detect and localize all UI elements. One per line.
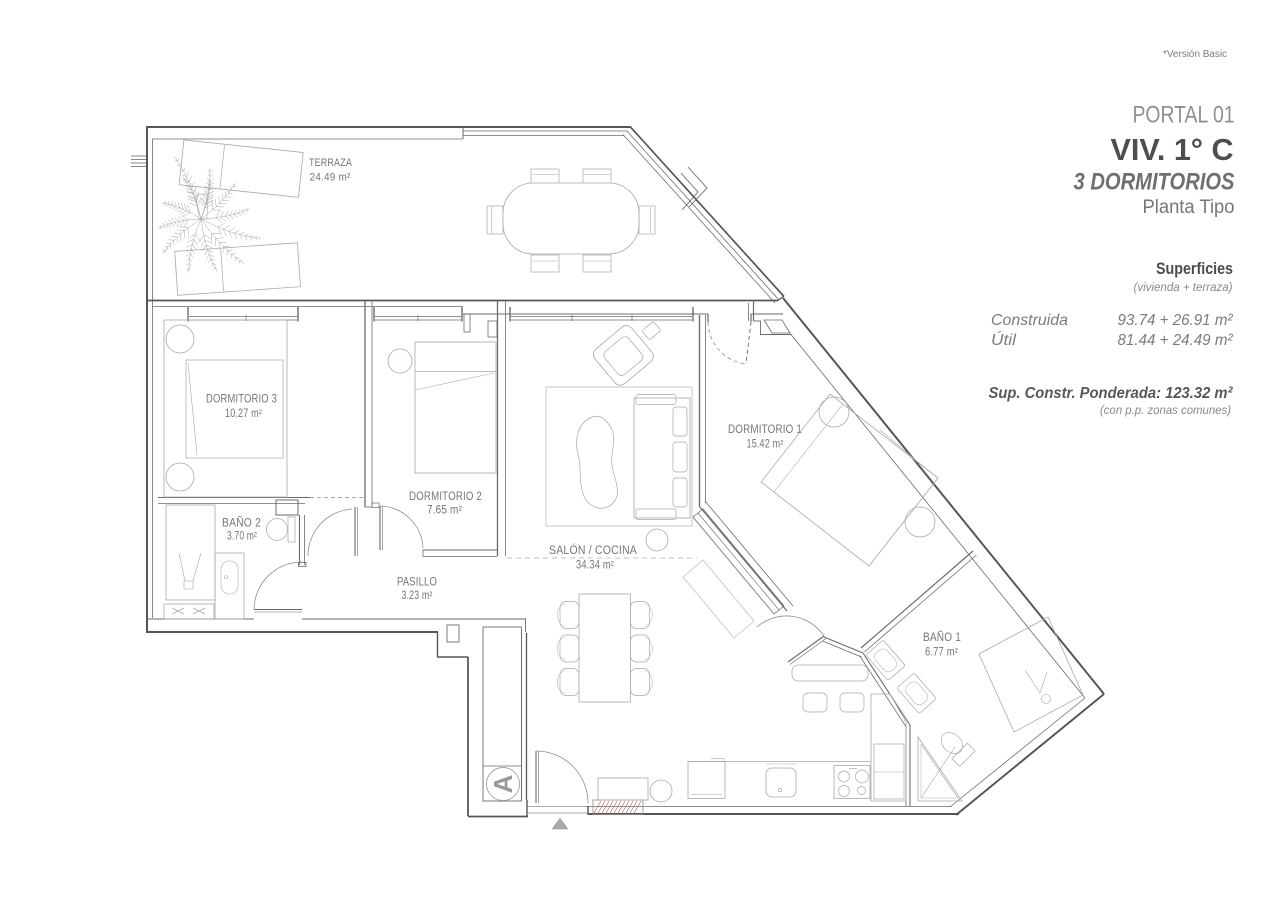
svg-text:TERRAZA: TERRAZA bbox=[309, 157, 352, 169]
svg-text:24.49 m²: 24.49 m² bbox=[310, 172, 351, 184]
svg-text:Planta Tipo: Planta Tipo bbox=[1143, 197, 1235, 218]
svg-text:Sup. Constr. Ponderada: 123.32: Sup. Constr. Ponderada: 123.32 m² bbox=[989, 385, 1234, 402]
svg-text:3.70 m²: 3.70 m² bbox=[227, 531, 257, 543]
svg-text:10.27 m²: 10.27 m² bbox=[225, 408, 262, 420]
svg-text:3.23 m²: 3.23 m² bbox=[402, 590, 433, 602]
svg-text:(vivienda + terraza): (vivienda + terraza) bbox=[1134, 280, 1233, 294]
svg-text:BAÑO 1: BAÑO 1 bbox=[923, 631, 961, 644]
svg-text:34.34 m²: 34.34 m² bbox=[576, 560, 614, 572]
svg-text:Construida: Construida bbox=[991, 312, 1068, 329]
svg-text:81.44 + 24.49 m²: 81.44 + 24.49 m² bbox=[1118, 332, 1234, 349]
svg-text:DORMITORIO 3: DORMITORIO 3 bbox=[206, 394, 277, 406]
svg-text:DORMITORIO 1: DORMITORIO 1 bbox=[728, 424, 802, 436]
svg-text:VIV. 1° C: VIV. 1° C bbox=[1111, 132, 1234, 167]
svg-text:PORTAL 01: PORTAL 01 bbox=[1133, 102, 1235, 129]
svg-text:3 DORMITORIOS: 3 DORMITORIOS bbox=[1074, 169, 1235, 196]
svg-text:*Versión Basic: *Versión Basic bbox=[1163, 48, 1227, 60]
svg-text:SALÓN / COCINA: SALÓN / COCINA bbox=[549, 544, 637, 557]
svg-text:15.42 m²: 15.42 m² bbox=[747, 439, 784, 451]
svg-text:Superficies: Superficies bbox=[1156, 260, 1233, 278]
svg-text:(con p.p. zonas comunes): (con p.p. zonas comunes) bbox=[1100, 403, 1231, 417]
svg-text:PASILLO: PASILLO bbox=[397, 577, 437, 589]
svg-text:DORMITORIO 2: DORMITORIO 2 bbox=[409, 491, 482, 503]
svg-text:BAÑO 2: BAÑO 2 bbox=[222, 517, 261, 530]
svg-text:7.65 m²: 7.65 m² bbox=[427, 505, 462, 517]
svg-text:93.74 + 26.91 m²: 93.74 + 26.91 m² bbox=[1118, 312, 1234, 329]
svg-text:Útil: Útil bbox=[991, 330, 1016, 349]
svg-text:A: A bbox=[488, 774, 518, 793]
svg-text:6.77 m²: 6.77 m² bbox=[925, 647, 958, 659]
